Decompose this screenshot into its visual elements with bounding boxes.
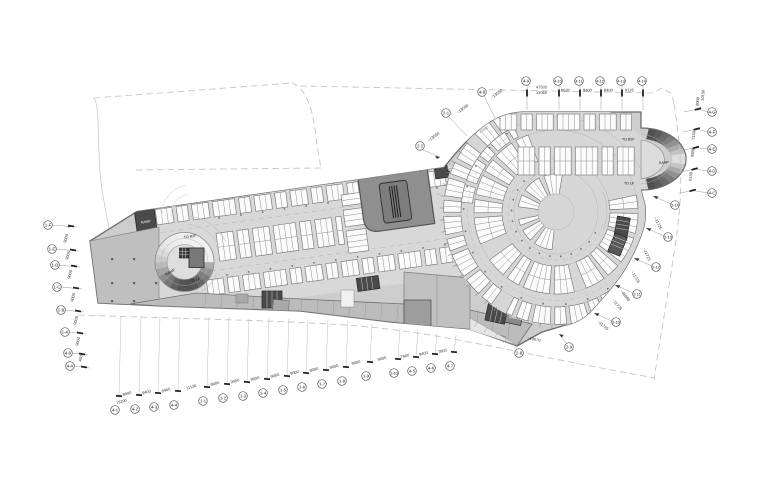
svg-text:4-G: 4-G xyxy=(709,109,716,114)
svg-text:2-12: 2-12 xyxy=(652,265,659,269)
svg-text:4-4: 4-4 xyxy=(171,402,178,407)
svg-text:2-13: 2-13 xyxy=(664,235,671,239)
svg-text:4-B: 4-B xyxy=(65,350,72,355)
svg-text:1-B: 1-B xyxy=(58,307,65,312)
svg-text:1-A: 1-A xyxy=(62,329,69,334)
svg-text:4-6: 4-6 xyxy=(428,365,435,370)
svg-text:2-9: 2-9 xyxy=(566,344,573,349)
svg-text:TO B2F: TO B2F xyxy=(622,138,635,142)
svg-text:1-1: 1-1 xyxy=(200,398,207,403)
svg-text:1-3: 1-3 xyxy=(240,393,247,398)
svg-text:7150: 7150 xyxy=(691,130,697,140)
svg-text:1-10: 1-10 xyxy=(390,371,397,375)
svg-text:4-14: 4-14 xyxy=(638,79,645,83)
svg-text:4-F: 4-F xyxy=(709,129,716,134)
svg-text:4-C: 4-C xyxy=(709,190,716,195)
svg-text:8880: 8880 xyxy=(690,147,696,157)
svg-text:12060: 12060 xyxy=(536,90,548,95)
svg-text:1-9: 1-9 xyxy=(363,373,370,378)
svg-text:RAMP: RAMP xyxy=(659,160,670,165)
svg-text:2-10: 2-10 xyxy=(612,320,619,324)
svg-text:4-E: 4-E xyxy=(709,146,716,151)
svg-text:1-4: 1-4 xyxy=(260,390,267,395)
svg-text:4-13: 4-13 xyxy=(617,79,624,83)
svg-text:4-9: 4-9 xyxy=(523,78,530,83)
svg-text:8150: 8150 xyxy=(688,171,694,181)
svg-text:8620: 8620 xyxy=(561,88,571,93)
svg-text:4-5: 4-5 xyxy=(409,368,416,373)
svg-text:2-1: 2-1 xyxy=(443,110,450,115)
svg-text:8400: 8400 xyxy=(583,88,593,93)
svg-text:4-8: 4-8 xyxy=(479,89,486,94)
svg-text:2-8: 2-8 xyxy=(516,350,523,355)
svg-text:1-7: 1-7 xyxy=(319,381,326,386)
svg-text:1-5: 1-5 xyxy=(280,387,287,392)
svg-text:4-1: 4-1 xyxy=(112,407,119,412)
svg-text:2-14: 2-14 xyxy=(671,203,678,207)
svg-text:1-C: 1-C xyxy=(54,284,61,289)
svg-text:1-8: 1-8 xyxy=(339,378,346,383)
svg-text:TO 1F: TO 1F xyxy=(624,182,635,186)
svg-text:4-7: 4-7 xyxy=(447,363,454,368)
svg-text:8400: 8400 xyxy=(604,88,614,93)
svg-text:47505: 47505 xyxy=(536,85,548,90)
svg-text:4-11: 4-11 xyxy=(576,79,583,83)
svg-text:4-12: 4-12 xyxy=(596,79,603,83)
svg-text:9125: 9125 xyxy=(625,88,635,93)
svg-text:2-11: 2-11 xyxy=(634,292,641,296)
svg-text:1-F: 1-F xyxy=(45,222,52,227)
svg-text:4-A: 4-A xyxy=(67,363,74,368)
svg-text:2-2: 2-2 xyxy=(417,143,424,148)
svg-text:4-10: 4-10 xyxy=(554,79,561,83)
svg-text:4-D: 4-D xyxy=(709,168,716,173)
svg-text:4-2: 4-2 xyxy=(132,406,139,411)
svg-text:1-E: 1-E xyxy=(49,246,56,251)
svg-text:4-3: 4-3 xyxy=(151,404,158,409)
svg-text:1-6: 1-6 xyxy=(299,384,306,389)
svg-text:1-2: 1-2 xyxy=(220,395,227,400)
svg-text:1-D: 1-D xyxy=(52,262,59,267)
